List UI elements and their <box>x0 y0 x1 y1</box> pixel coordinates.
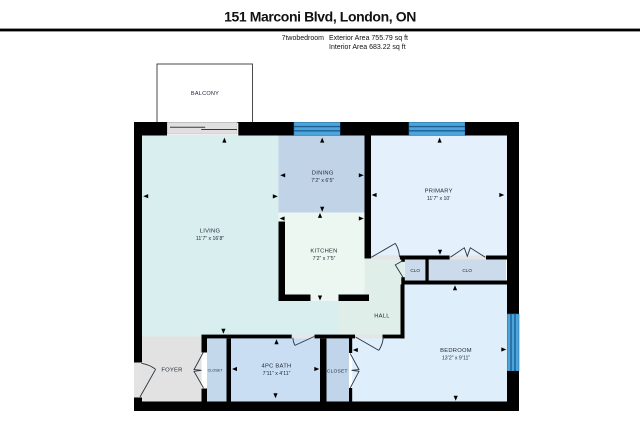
svg-text:Exterior Area 755.79 sq ft: Exterior Area 755.79 sq ft <box>329 35 408 42</box>
svg-text:HALL: HALL <box>374 314 390 320</box>
svg-text:151 Marconi Blvd, London, ON: 151 Marconi Blvd, London, ON <box>224 9 416 25</box>
svg-text:7twobedroom: 7twobedroom <box>282 35 325 42</box>
svg-text:CLO: CLO <box>410 268 420 273</box>
svg-text:LIVING: LIVING <box>200 229 221 235</box>
svg-text:11’7” x 16’8”: 11’7” x 16’8” <box>196 236 224 242</box>
svg-text:7’2” x 7’5”: 7’2” x 7’5” <box>313 256 336 262</box>
svg-text:PRIMARY: PRIMARY <box>425 189 453 195</box>
svg-text:KITCHEN: KITCHEN <box>310 249 337 255</box>
svg-text:Interior Area 683.22 sq ft: Interior Area 683.22 sq ft <box>329 44 406 51</box>
svg-text:CLOSET: CLOSET <box>327 369 348 375</box>
svg-text:7’2” x 6’5”: 7’2” x 6’5” <box>311 178 334 184</box>
svg-text:4PC BATH: 4PC BATH <box>262 363 292 369</box>
svg-text:BALCONY: BALCONY <box>191 91 219 97</box>
svg-text:11’7” x 10’: 11’7” x 10’ <box>427 196 451 202</box>
svg-text:7’11” x 4’11”: 7’11” x 4’11” <box>263 371 291 377</box>
svg-text:13’2” x 9’11”: 13’2” x 9’11” <box>442 356 470 362</box>
svg-text:FOYER: FOYER <box>161 367 182 373</box>
svg-text:BEDROOM: BEDROOM <box>440 348 472 354</box>
svg-text:CLOSET: CLOSET <box>208 368 224 372</box>
svg-text:CLO: CLO <box>462 268 472 273</box>
svg-text:DINING: DINING <box>312 171 334 177</box>
